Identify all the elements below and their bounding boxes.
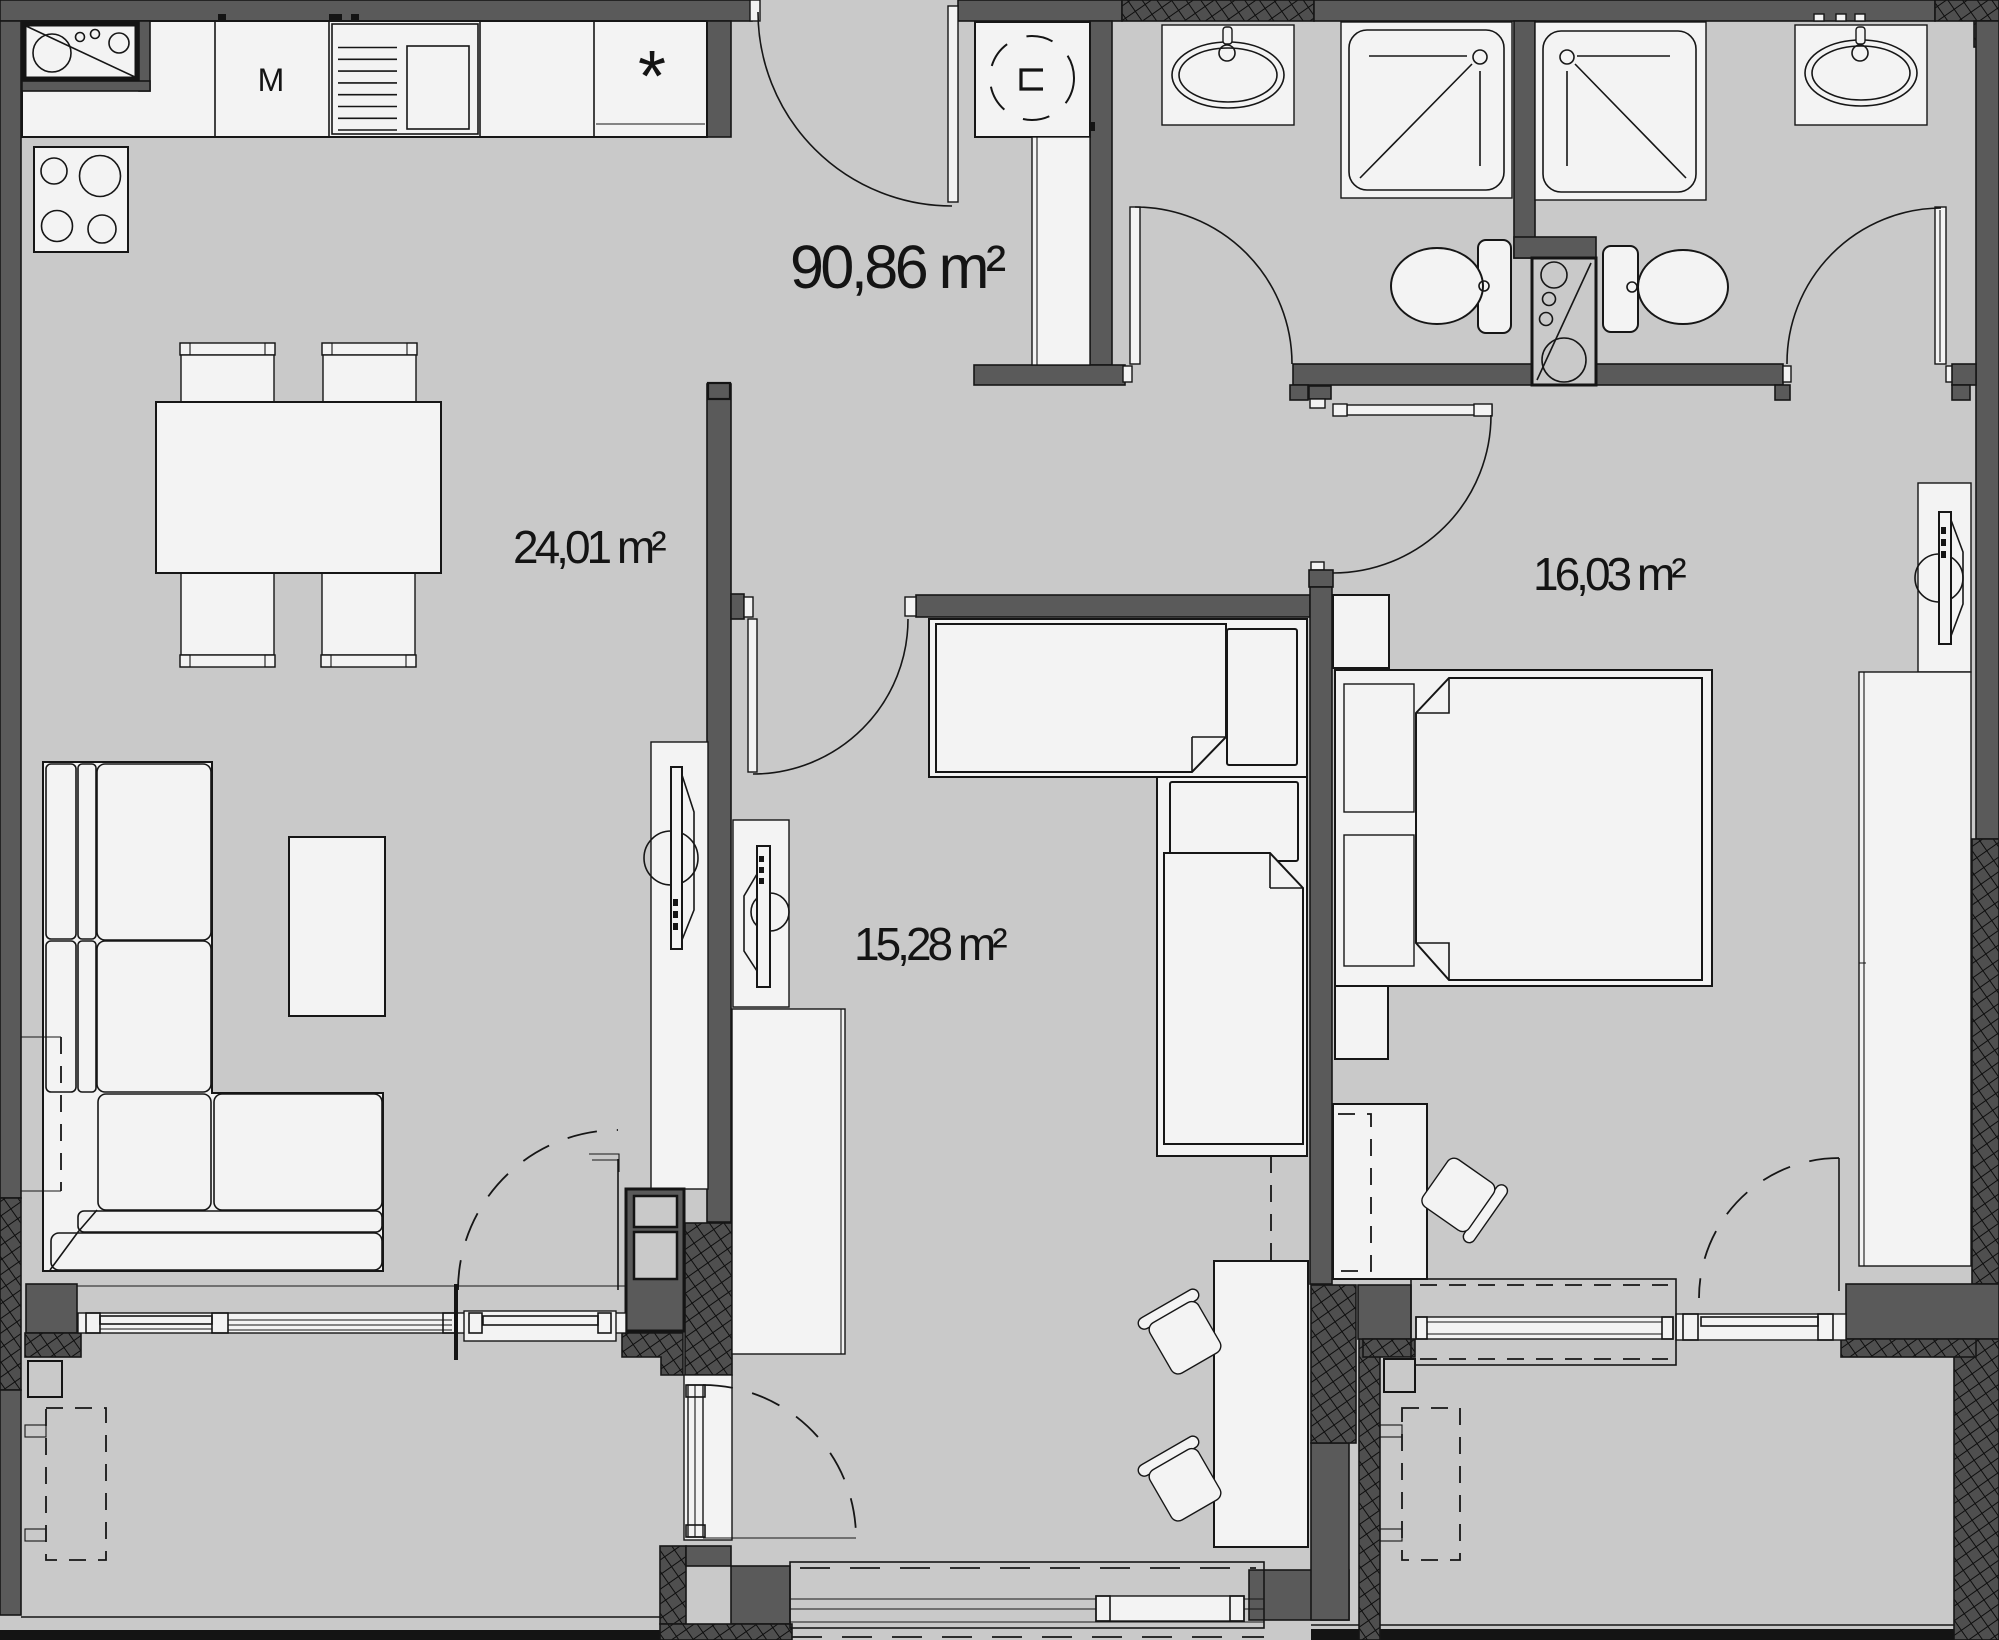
svg-text:16,03 m²: 16,03 m²	[1533, 548, 1686, 600]
svg-text:90,86 m²: 90,86 m²	[790, 233, 1006, 301]
svg-text:15,28 m²: 15,28 m²	[854, 918, 1007, 970]
svg-text:*: *	[638, 37, 666, 117]
svg-text:M: M	[258, 62, 285, 98]
svg-text:24,01 m²: 24,01 m²	[513, 521, 666, 573]
